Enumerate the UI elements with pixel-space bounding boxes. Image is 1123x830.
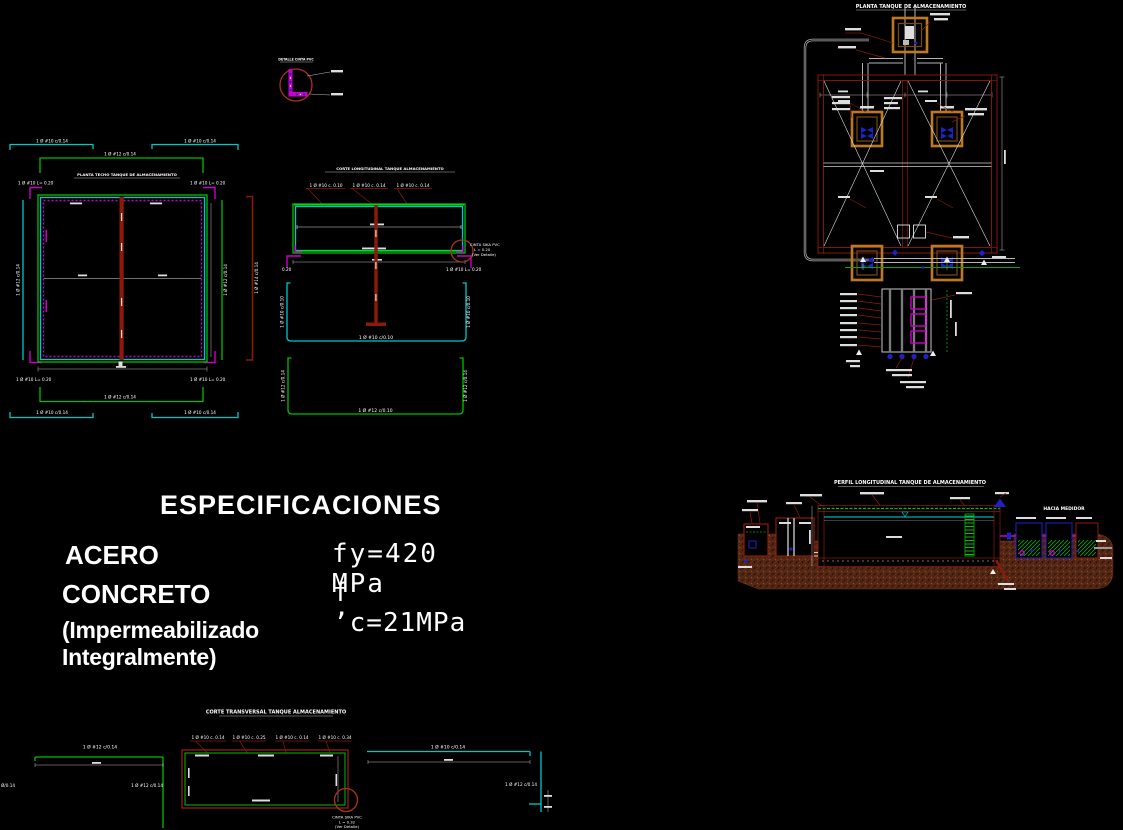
rebar-label: 1 Ø #10 c. 0.14 (352, 183, 385, 188)
rebar-label: 1 Ø #12 c/0.14 (505, 782, 537, 787)
waterstop-shape (289, 69, 308, 97)
plan-tank-title: PLANTA TANQUE DE ALMACENAMIENTO (856, 4, 967, 10)
profile-drawing: PERFIL LONGITUDINAL TANQUE DE ALMACENAMI… (735, 470, 1123, 598)
waterstop-detail-drawing: DETALLE CINTA PVC (258, 52, 353, 110)
rebar-label: 1 Ø #12 c/0.14 (104, 395, 136, 400)
right-cyan-bracket: 1 Ø #10 c/0.14 1 Ø #12 c/0.14 (367, 744, 552, 813)
valve-box-right (932, 106, 962, 146)
plan-tank-drawing: PLANTA TANQUE DE ALMACENAMIENTO (780, 0, 1042, 398)
plan-roof-outer-cyan: 1 Ø #10 c/0.14 1 Ø #10 c/0.14 (10, 139, 238, 151)
left-green-bracket: 1 Ø #12 c/0.14 1 Ø #12 c/0.14 Ø/0.14 (1, 744, 163, 829)
section-long-rebar-callouts: 1 Ø #10 c. 0.10 1 Ø #10 c. 0.14 1 Ø #10 … (306, 183, 432, 204)
section-long-title: CORTE LONGITUDINAL TANQUE ALMACENAMIENTO (336, 166, 444, 171)
plan-roof-bottom-dim (38, 366, 207, 372)
plan-roof-centerlines (44, 197, 201, 368)
waterstop-label: (Ver Detalle) (472, 252, 496, 257)
hook-label: 1 Ø #10 L= 0.20 (18, 181, 54, 186)
tank-section (818, 506, 1000, 567)
cad-canvas: { "canvas": {"background": "#000000"}, "… (0, 0, 1123, 828)
to-meter-label: HACIA MEDIDOR (1043, 506, 1085, 512)
outlet-chambers (1000, 517, 1112, 559)
section-trans-drawing: CORTE TRANSVERSAL TANQUE ALMACENAMIENTO … (0, 698, 580, 830)
rebar-label: 1 Ø #10 c. 0.34 (318, 735, 351, 740)
inlet-box-top (893, 18, 927, 52)
plan-roof-title: PLANTA TECHO TANQUE DE ALMACENAMIENTO (77, 172, 177, 177)
rebar-label: 1 Ø #10 c/0.14 (36, 139, 68, 144)
steel-label: ACERO (65, 540, 159, 571)
section-long-drawing: CORTE LONGITUDINAL TANQUE ALMACENAMIENTO… (278, 150, 490, 425)
waterproofing-note: (Impermeabilizado Integralmente) (62, 617, 259, 671)
section-long-slab (293, 204, 465, 253)
plan-roof-bottom-cyan: 1 Ø #10 c/0.14 1 Ø #10 c/0.14 (10, 410, 238, 418)
specs-title: ESPECIFICACIONES (160, 490, 442, 521)
sump-boxes (898, 225, 970, 238)
rebar-label: 1 Ø #12 c/0.14 (223, 264, 228, 296)
rebar-label: 1 Ø #10 c. 0.10 (309, 183, 342, 188)
rebar-label: 1 Ø #12 c/0.10 (358, 407, 392, 414)
valve-box-left (852, 106, 882, 146)
rebar-label: 1 Ø #14 c/0.14 (254, 262, 259, 294)
valve-manifold (882, 289, 957, 359)
vent (994, 492, 1009, 507)
manifold-callouts (840, 292, 972, 388)
rebar-label: Ø/0.14 (1, 783, 15, 788)
rebar-label: 1 Ø #10 c/0.14 (184, 139, 216, 144)
rebar-label: 1 Ø #10 c/0.14 (184, 410, 216, 415)
rebar-label: 1 Ø #10 c/0.14 (36, 410, 68, 415)
rebar-label: 1 Ø #10 c. 0.14 (275, 735, 308, 740)
rebar-label: 1 Ø #12 c/0.14 (104, 152, 136, 157)
waterstop-callout: CINTA SIKA PVC L = 0.32 (Ver Detalle) (332, 789, 362, 830)
hook-label: 1 Ø #10 L= 0.20 (190, 181, 226, 186)
hook-label: 1 Ø #10 L= 0.20 (446, 267, 482, 272)
concrete-value: f ’c=21MPa (333, 578, 466, 638)
rebar-label: 1 Ø #12 c/0.14 (281, 370, 286, 402)
tank-box (182, 750, 348, 808)
rebar-label: 1 Ø #10 c/0.10 (280, 296, 285, 328)
gray-pipes (863, 4, 947, 112)
rebar-label: 1 Ø #10 c. 0.14 (396, 183, 429, 188)
rebar-label: 1 Ø #12 c/0.14 (16, 264, 21, 296)
plan-roof-green-bracket-bottom: 1 Ø #12 c/0.14 (40, 387, 203, 402)
interior-callouts (838, 100, 953, 208)
detail-title: DETALLE CINTA PVC (278, 58, 314, 62)
plan-roof-drawing: 1 Ø #10 c/0.14 1 Ø #10 c/0.14 1 Ø #12 c/… (0, 138, 270, 434)
hook-label: 1 Ø #10 L= 0.20 (190, 377, 226, 382)
channel-bottom-green: 1 Ø #12 c/0.14 1 Ø #12 c/0.14 1 Ø #12 c/… (281, 358, 469, 414)
rebar-label: 1 Ø #12 c/0.14 (131, 783, 163, 788)
rebar-label: 1 Ø #10 c/0.10 (359, 334, 393, 341)
section-long-dim (293, 259, 465, 264)
concrete-label: CONCRETO (62, 579, 210, 610)
right-dim (1000, 77, 1006, 250)
hook-label: 0.20 (282, 267, 292, 272)
plan-roof-green-bracket-top: 1 Ø #12 c/0.14 (40, 152, 203, 174)
profile-title: PERFIL LONGITUDINAL TANQUE DE ALMACENAMI… (834, 480, 986, 486)
waterstop-label: (Ver Detalle) (335, 824, 359, 829)
rebar-label: 1 Ø #10 c. 0.14 (191, 735, 224, 740)
rebar-label: 1 Ø #12 c/0.14 (83, 744, 117, 751)
section-trans-title: CORTE TRANSVERSAL TANQUE ALMACENAMIENTO (206, 710, 346, 716)
rebar-label: 1 Ø #12 c/0.14 (463, 370, 468, 402)
hook-label: 1 Ø #10 L= 0.20 (16, 377, 52, 382)
ladder (965, 514, 974, 556)
rebar-label: 1 Ø #10 c. 0.25 (232, 735, 265, 740)
center-red-bar (366, 205, 386, 326)
rebar-label: 1 Ø #10 c/0.14 (431, 744, 465, 751)
water-level-symbol (902, 512, 908, 517)
overflow-pipe (805, 40, 874, 260)
rebar-label: 1 Ø #10 c/0.10 (466, 296, 471, 328)
section-long-hooks: 0.20 1 Ø #10 L= 0.20 (282, 256, 482, 272)
